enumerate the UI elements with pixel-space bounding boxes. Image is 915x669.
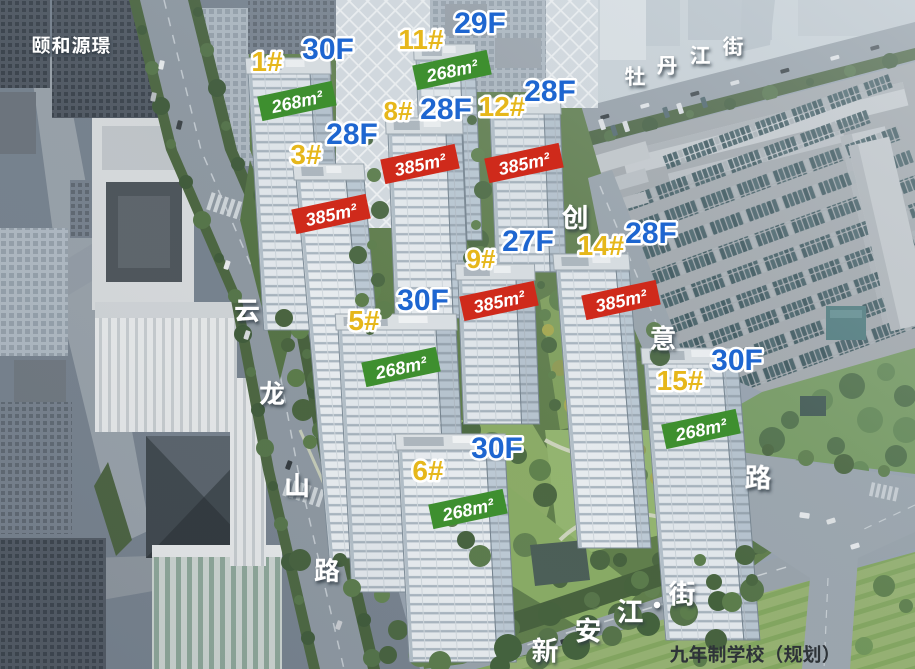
svg-text:14#: 14# (578, 230, 625, 261)
svg-text:29F: 29F (454, 7, 506, 40)
svg-text:11#: 11# (398, 24, 444, 55)
svg-text:30F: 30F (302, 33, 354, 66)
svg-text:8#: 8# (384, 96, 413, 126)
svg-text:1#: 1# (251, 46, 283, 77)
svg-text:28F: 28F (420, 93, 472, 126)
svg-text:30F: 30F (711, 344, 763, 377)
svg-text:28F: 28F (524, 75, 576, 108)
svg-text:30F: 30F (397, 284, 449, 317)
svg-text:27F: 27F (502, 225, 554, 258)
svg-text:3#: 3# (290, 139, 322, 170)
svg-text:6#: 6# (412, 455, 444, 486)
svg-text:5#: 5# (348, 305, 380, 336)
svg-text:12#: 12# (479, 91, 526, 122)
svg-text:28F: 28F (326, 118, 378, 151)
svg-text:28F: 28F (625, 217, 677, 250)
svg-text:30F: 30F (471, 432, 523, 465)
svg-text:9#: 9# (467, 244, 496, 274)
svg-text:15#: 15# (657, 365, 704, 396)
